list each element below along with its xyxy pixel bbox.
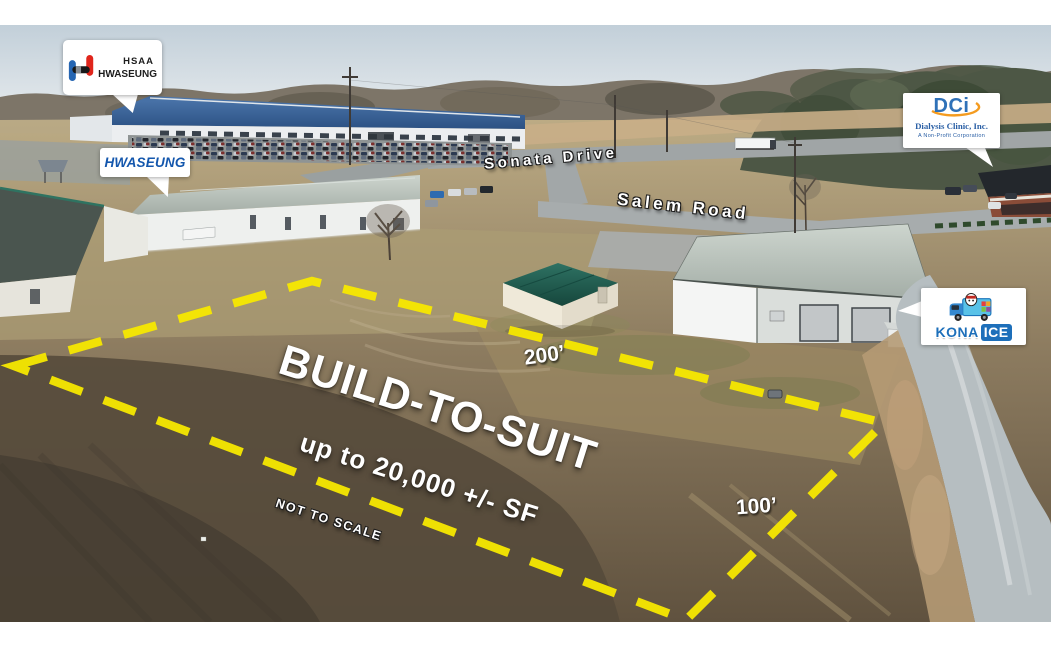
hwaseung-callout: HWASEUNG xyxy=(100,148,190,177)
dimension-200ft: 200’ xyxy=(523,342,566,368)
bottom-margin xyxy=(0,622,1051,648)
flyer-page: Sonata Drive Salem Road BUILD-TO-SUIT up… xyxy=(0,0,1051,648)
kona-truck-icon xyxy=(945,293,1003,323)
aerial-photo: Sonata Drive Salem Road BUILD-TO-SUIT up… xyxy=(0,25,1051,622)
hwaseung-label: HWASEUNG xyxy=(104,155,185,170)
hwaseung-mark-icon xyxy=(68,52,94,84)
hsaa-line2: HWASEUNG xyxy=(98,69,157,80)
top-margin xyxy=(0,0,1051,25)
parcel-boundary xyxy=(0,25,1051,622)
parcel-boundary-line xyxy=(14,281,884,620)
dci-tagline: A Non-Profit Corporation xyxy=(918,133,985,139)
dci-name: Dialysis Clinic, Inc. xyxy=(915,121,988,131)
dci-abbr: DCi xyxy=(934,95,970,117)
hsaa-hwaseung-callout: HSAA HWASEUNG xyxy=(63,40,162,95)
hsaa-line1: HSAA xyxy=(98,56,154,67)
kona-ice-callout: KONAICE xyxy=(921,288,1026,345)
kona-word2: ICE xyxy=(981,324,1012,341)
dimension-100ft: 100’ xyxy=(735,495,777,519)
kona-word1: KONA xyxy=(935,324,978,340)
dci-callout: DCi Dialysis Clinic, Inc. A Non-Profit C… xyxy=(903,93,1000,148)
